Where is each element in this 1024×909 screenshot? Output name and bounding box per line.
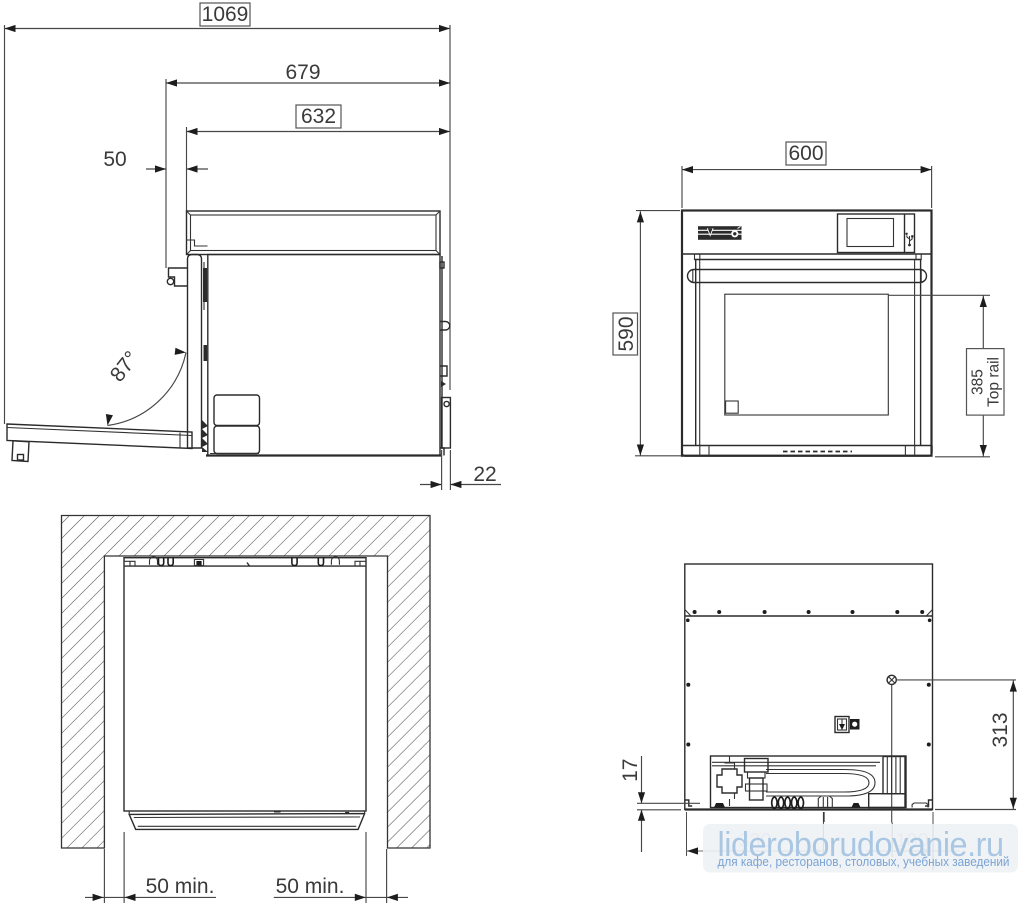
svg-text:1069: 1069 — [202, 3, 249, 26]
svg-text:50 min.: 50 min. — [276, 875, 345, 898]
svg-text:Top rail: Top rail — [986, 357, 1003, 407]
svg-text:590: 590 — [615, 316, 638, 351]
svg-text:385: 385 — [970, 369, 987, 395]
svg-text:600: 600 — [788, 142, 823, 165]
svg-text:17: 17 — [619, 759, 642, 782]
svg-text:22: 22 — [473, 463, 496, 486]
svg-text:50: 50 — [103, 148, 126, 171]
svg-text:679: 679 — [285, 61, 320, 84]
svg-text:для кафе, ресторанов, столовых: для кафе, ресторанов, столовых, учебных … — [718, 854, 1010, 869]
svg-text:313: 313 — [989, 712, 1012, 747]
svg-text:87°: 87° — [106, 347, 144, 386]
svg-text:50 min.: 50 min. — [146, 875, 215, 898]
svg-text:632: 632 — [301, 105, 336, 128]
